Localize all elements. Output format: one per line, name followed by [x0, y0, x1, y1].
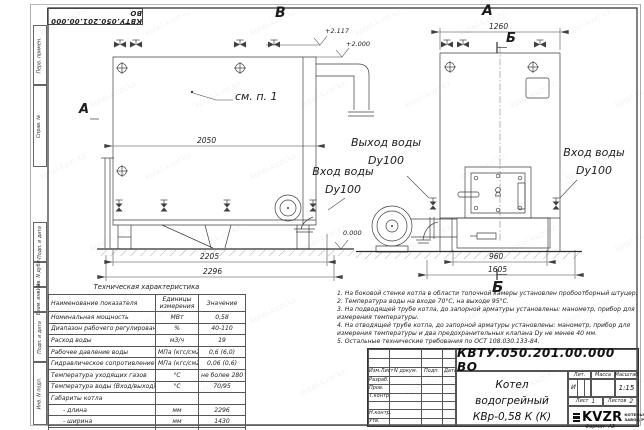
spec-row: - длинамм2296 — [49, 404, 246, 416]
spec-cell: 0,06 (0,6) — [199, 358, 246, 370]
top-stamp: КВТУ.050.201.00.000 ВО — [47, 8, 143, 25]
designation-cell: КВТУ.050.201.00.000 ВО — [456, 349, 638, 371]
spec-cell: 1430 — [199, 416, 246, 428]
lifting-lug-icon — [527, 61, 539, 73]
product-name-line1: Котел водогрейный — [457, 378, 567, 410]
scale-value: 1:15 — [619, 384, 635, 392]
valve-icon — [441, 40, 453, 48]
frame-cell: Справ. № — [33, 85, 47, 167]
drawing-sheet: kotel-kvzr.kzkotel-kvzr.kzkotel-kvzr.kzk… — [0, 0, 644, 430]
level-ground: 0.000 — [343, 230, 362, 237]
frame-label: Подп. и дата — [38, 321, 43, 354]
lifting-lug-icon — [116, 165, 128, 177]
spec-table-title: Техническая характеристика — [48, 284, 245, 291]
format-value: А3 — [608, 424, 615, 430]
frame-cell: Подп. и дата — [33, 222, 47, 262]
logo-subtitle-2: ЗАВОД РЭП — [624, 418, 644, 422]
frame-label: Справ. № — [38, 114, 43, 137]
row-prov: Пров. — [369, 386, 384, 391]
label-water-inlet-left: Вход воды — [310, 166, 376, 177]
label-water-inlet-left-dn: Dy100 — [310, 184, 376, 195]
spec-row: Габариты котла — [49, 393, 246, 405]
spec-cell: Рабочее давление воды — [49, 346, 156, 358]
leader-inlet-left — [328, 198, 345, 210]
spec-cell: 0,6 (6,0) — [199, 346, 246, 358]
level-boiler-top: +2.000 — [346, 41, 370, 48]
technical-note: 3. На подводящей трубе котла, до запорно… — [337, 306, 640, 322]
frame-label: Перв. примен. — [38, 37, 43, 73]
spec-cell: °С — [156, 381, 199, 393]
level-mark — [335, 240, 348, 249]
door-handle — [458, 192, 479, 197]
spec-cell: 40-110 — [199, 323, 246, 335]
spec-cell: мм — [156, 416, 199, 428]
dim-2205: 2205 — [200, 253, 219, 261]
spec-row: Температура воды (Вход/выход)°С70/95 — [49, 381, 246, 393]
spec-cell: Расход воды — [49, 335, 156, 347]
lit-header: Лит. — [568, 371, 591, 379]
sheets-number: 2 — [629, 399, 633, 405]
spec-cell: % — [156, 323, 199, 335]
lifting-lug-icon — [444, 61, 456, 73]
spec-row: Рабочее давление водыМПа (кгс/см2)0,6 (6… — [49, 346, 246, 358]
leader-outlet — [407, 176, 429, 198]
col-podp: Подп. — [424, 369, 439, 374]
view-marker-a-left: А — [79, 103, 89, 116]
drain-valve-icon — [116, 200, 123, 212]
boiler-side-view — [97, 40, 374, 256]
spec-cell: - ширина — [49, 416, 156, 428]
frame-label: Взам. инв. N — [38, 284, 43, 315]
mass-cell — [591, 379, 615, 397]
spec-row: - ширинамм1430 — [49, 416, 246, 428]
spec-row: Диапазон рабочего регулирования%40-110 — [49, 323, 246, 335]
label-water-outlet: Выход воды — [348, 137, 424, 148]
spec-row: Расход водым3/ч19 — [49, 335, 246, 347]
name-plate — [526, 78, 549, 98]
leader-inlet-right — [560, 180, 577, 198]
spec-header: Единицы измерения — [156, 295, 199, 312]
frame-label: Подп. и дата — [38, 226, 43, 259]
furnace-door — [458, 167, 531, 218]
technical-note: 1. На боковой стенке котла в области топ… — [337, 290, 640, 298]
frame-label: Инв. N подл. — [38, 378, 43, 410]
spec-cell: °С — [156, 369, 199, 381]
dim-960: 960 — [489, 253, 503, 261]
row-nkontr: Н.контр. — [369, 411, 391, 416]
logo-mark-icon — [573, 413, 580, 422]
lit-cell: И — [568, 379, 591, 397]
blower-fan — [372, 206, 412, 252]
technical-note: 5. Остальные технические требования по О… — [337, 338, 640, 346]
spec-cell: 19 — [199, 335, 246, 347]
callout-leader — [193, 93, 233, 100]
spec-cell: Температура воды (Вход/выход) — [49, 381, 156, 393]
col-izm-list: Изм.Лист — [369, 369, 393, 374]
title-block: Изм.Лист N докум. Подп. Дата Разраб. Про… — [367, 348, 639, 427]
sheets-cell: Листов 2 — [603, 397, 638, 406]
spec-cell: не более 280 — [199, 369, 246, 381]
row-utv: Утв. — [369, 419, 380, 424]
sheet-cell: Лист 1 — [568, 397, 603, 406]
dim-1605: 1605 — [488, 266, 507, 274]
spec-cell — [156, 393, 199, 405]
valve-icon — [234, 40, 246, 48]
spec-cell: МПа (кгс/см2) — [156, 346, 199, 358]
col-data: Дата — [444, 369, 457, 374]
valve-icon — [457, 40, 469, 48]
mass-header: Масса — [591, 371, 615, 379]
frame-cell: Взам. инв. N — [33, 287, 47, 312]
frame-cell: Подп. и дата — [33, 312, 47, 362]
drain-valve-icon — [161, 200, 168, 212]
product-name-cell: Котел водогрейный КВр-0,58 К (К) — [456, 371, 568, 426]
spec-row: Номинальная мощностьМВт0,58 — [49, 312, 246, 324]
label-water-inlet-right: Вход воды — [558, 147, 630, 158]
drain-valve-icon — [224, 200, 231, 212]
view-marker-a-top: А — [482, 4, 493, 18]
spec-cell: - длина — [49, 404, 156, 416]
side-valve-icon — [553, 198, 560, 210]
spec-cell: м3/ч — [156, 335, 199, 347]
section-marker-b-top: Б — [506, 32, 516, 45]
spec-table: Наименование показателя Единицы измерени… — [48, 294, 246, 430]
spec-cell: 0,58 — [199, 312, 246, 324]
technical-note: 2. Температура воды на входе 70°С, на вы… — [337, 298, 640, 306]
frame-cell: Инв. N подл. — [33, 362, 47, 425]
spec-row: Температура уходящих газов°Сне более 280 — [49, 369, 246, 381]
spec-cell: МВт — [156, 312, 199, 324]
spec-cell: мм — [156, 404, 199, 416]
scale-cell: 1:15 — [615, 379, 638, 397]
spec-cell — [199, 393, 246, 405]
lifting-lug-icon — [116, 62, 128, 74]
dim-1260: 1260 — [489, 23, 508, 31]
spec-cell: Диапазон рабочего регулирования — [49, 323, 156, 335]
row-razrab: Разраб. — [369, 378, 389, 383]
lifting-lug-icon — [234, 62, 246, 74]
frame-cell: Перв. примен. — [33, 25, 47, 85]
dim-2296: 2296 — [203, 268, 222, 276]
spec-cell: Гидравлическое сопротивление котла — [49, 358, 156, 370]
outlet-pipe — [316, 64, 369, 110]
sheet-number: 1 — [591, 399, 595, 405]
valve-icon — [130, 40, 142, 48]
document-designation: КВТУ.050.201.00.000 ВО — [457, 346, 637, 374]
row-tkontr: Т.контр. — [369, 394, 391, 399]
format-note: Формат А3 — [585, 425, 615, 430]
spec-cell: Номинальная мощность — [49, 312, 156, 324]
stamp-designation: КВТУ.050.201.00.000 ВО — [48, 9, 142, 25]
spec-cell: Температура уходящих газов — [49, 369, 156, 381]
callout-text: см. п. 1 — [235, 91, 278, 102]
boiler-front-view — [356, 40, 582, 259]
valve-icon — [268, 40, 280, 48]
level-mark — [314, 36, 327, 45]
spec-cell: Габариты котла — [49, 393, 156, 405]
ash-pit — [457, 218, 550, 248]
spec-header: Наименование показателя — [49, 295, 156, 312]
valve-icon — [114, 40, 126, 48]
spec-cell: МПа (кгс/см2) — [156, 358, 199, 370]
lit-value: И — [571, 383, 576, 391]
technical-notes: 1. На боковой стенке котла в области топ… — [337, 290, 640, 345]
valve-icon — [534, 40, 546, 48]
technical-note: 4. На отводящей трубе котла, до запорной… — [337, 322, 640, 338]
inlet-valve-icon — [310, 200, 317, 212]
spec-cell: 2296 — [199, 404, 246, 416]
label-water-inlet-right-dn: Dy100 — [558, 165, 630, 176]
col-docnum: N докум. — [394, 369, 417, 374]
spec-row: Гидравлическое сопротивление котлаМПа (к… — [49, 358, 246, 370]
dim-2050: 2050 — [197, 137, 216, 145]
spec-cell: 70/95 — [199, 381, 246, 393]
level-mark — [336, 48, 349, 57]
product-name-line2: КВр-0,58 К (К) — [457, 410, 567, 426]
side-valve-icon — [430, 198, 437, 210]
level-chimney: +2.117 — [325, 28, 349, 35]
spec-header: Значение — [199, 295, 246, 312]
scale-header: Масштаб — [615, 371, 638, 379]
view-marker-v: В — [275, 6, 286, 20]
